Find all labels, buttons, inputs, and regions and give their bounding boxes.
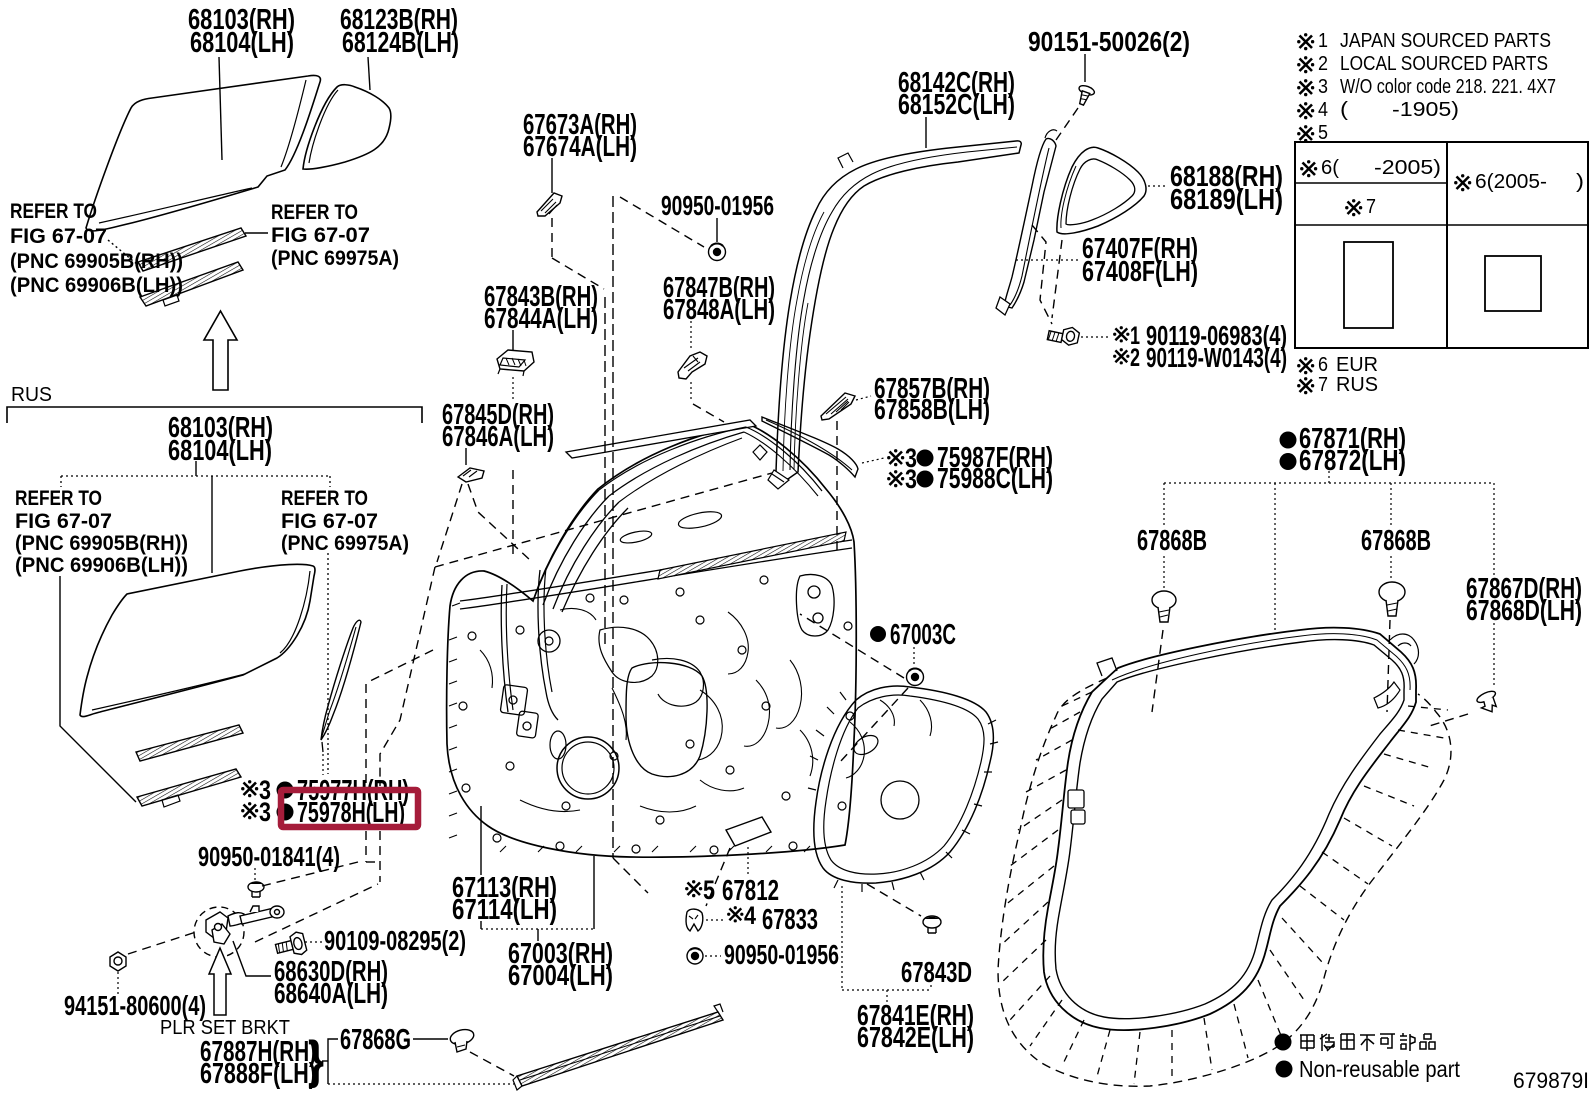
svg-text:REFER TO: REFER TO <box>10 200 97 223</box>
svg-text:RUS: RUS <box>1336 374 1378 396</box>
svg-text:68152C(LH): 68152C(LH) <box>898 89 1015 121</box>
svg-text:67844A(LH): 67844A(LH) <box>484 303 598 335</box>
svg-text:5: 5 <box>1318 122 1328 144</box>
svg-text:W/O color code 218. 221. 4X7: W/O color code 218. 221. 4X7 <box>1340 76 1556 98</box>
svg-text:67888F(LH): 67888F(LH) <box>200 1058 316 1090</box>
svg-text:67833: 67833 <box>762 904 818 936</box>
svg-text:67842E(LH): 67842E(LH) <box>857 1022 974 1054</box>
svg-text:67003C: 67003C <box>890 619 956 651</box>
svg-text:RUS: RUS <box>11 384 52 406</box>
svg-text:(PNC 69905B(RH)): (PNC 69905B(RH)) <box>15 532 188 555</box>
svg-text:67868B: 67868B <box>1361 525 1431 557</box>
svg-text:FIG 67-07: FIG 67-07 <box>281 510 378 533</box>
svg-text:(: ( <box>1340 99 1348 121</box>
svg-text:FIG 67-07: FIG 67-07 <box>15 510 112 533</box>
svg-text:2: 2 <box>1318 53 1328 75</box>
svg-text:68104(LH): 68104(LH) <box>190 27 294 59</box>
svg-text:REFER TO: REFER TO <box>271 201 358 224</box>
svg-text:67872(LH): 67872(LH) <box>1299 445 1406 477</box>
svg-text:7: 7 <box>1318 374 1328 396</box>
svg-text:REFER TO: REFER TO <box>281 487 368 510</box>
svg-text:}: } <box>308 1031 324 1089</box>
svg-text:FIG 67-07: FIG 67-07 <box>271 224 370 247</box>
svg-text:90950-01956: 90950-01956 <box>724 939 839 970</box>
svg-text:67004(LH): 67004(LH) <box>508 960 613 992</box>
svg-text:(PNC 69905B(RH)): (PNC 69905B(RH)) <box>10 250 183 273</box>
svg-text:67674A(LH): 67674A(LH) <box>523 131 637 163</box>
svg-text:3: 3 <box>1318 76 1328 98</box>
svg-text:JAPAN SOURCED PARTS: JAPAN SOURCED PARTS <box>1340 30 1551 52</box>
svg-text:67858B(LH): 67858B(LH) <box>874 394 990 426</box>
svg-text:90151-50026(2): 90151-50026(2) <box>1028 26 1190 57</box>
svg-text:(PNC 69906B(LH)): (PNC 69906B(LH)) <box>10 274 183 297</box>
svg-text:68640A(LH): 68640A(LH) <box>274 978 388 1010</box>
svg-text:68124B(LH): 68124B(LH) <box>342 27 459 59</box>
svg-text:67843D: 67843D <box>901 957 972 989</box>
svg-text:-2005): -2005) <box>1374 157 1441 179</box>
svg-text:679879I: 679879I <box>1513 1068 1589 1093</box>
svg-text:REFER TO: REFER TO <box>15 487 102 510</box>
svg-text:1: 1 <box>1318 30 1328 52</box>
svg-text:68189(LH): 68189(LH) <box>1170 184 1283 216</box>
svg-text:67114(LH): 67114(LH) <box>452 894 557 926</box>
svg-text:6: 6 <box>1318 354 1328 376</box>
svg-text:4: 4 <box>744 902 756 930</box>
svg-text:90119-W0143(4): 90119-W0143(4) <box>1146 342 1287 373</box>
svg-text:(PNC 69975A): (PNC 69975A) <box>281 532 409 555</box>
svg-text:FIG 67-07: FIG 67-07 <box>10 225 107 248</box>
svg-text:Non-reusable part: Non-reusable part <box>1299 1056 1461 1082</box>
svg-text:6(2005-: 6(2005- <box>1475 171 1547 193</box>
svg-text:7: 7 <box>1366 196 1376 218</box>
svg-text:): ) <box>1576 171 1584 193</box>
svg-text:(PNC 69975A): (PNC 69975A) <box>271 247 399 270</box>
svg-text:LOCAL SOURCED PARTS: LOCAL SOURCED PARTS <box>1340 53 1548 75</box>
svg-text:3: 3 <box>905 464 917 494</box>
svg-text:2: 2 <box>1130 344 1140 372</box>
svg-text:67868G: 67868G <box>340 1024 411 1056</box>
svg-text:90109-08295(2): 90109-08295(2) <box>324 925 466 956</box>
svg-text:75988C(LH): 75988C(LH) <box>937 463 1053 495</box>
svg-text:-1905): -1905) <box>1392 99 1459 121</box>
svg-text:90950-01841(4): 90950-01841(4) <box>198 841 340 872</box>
svg-text:EUR: EUR <box>1336 354 1378 376</box>
svg-text:3: 3 <box>259 797 271 827</box>
svg-text:67846A(LH): 67846A(LH) <box>442 421 554 453</box>
svg-text:(PNC 69906B(LH)): (PNC 69906B(LH)) <box>15 554 188 577</box>
svg-text:67868D(LH): 67868D(LH) <box>1466 595 1582 627</box>
svg-text:4: 4 <box>1318 99 1328 121</box>
svg-text:68104(LH): 68104(LH) <box>168 435 272 467</box>
svg-text:67848A(LH): 67848A(LH) <box>663 294 775 326</box>
svg-text:67408F(LH): 67408F(LH) <box>1082 256 1198 288</box>
svg-text:90950-01956: 90950-01956 <box>661 190 774 221</box>
svg-text:67868B: 67868B <box>1137 525 1207 557</box>
svg-text:6(: 6( <box>1321 157 1339 179</box>
